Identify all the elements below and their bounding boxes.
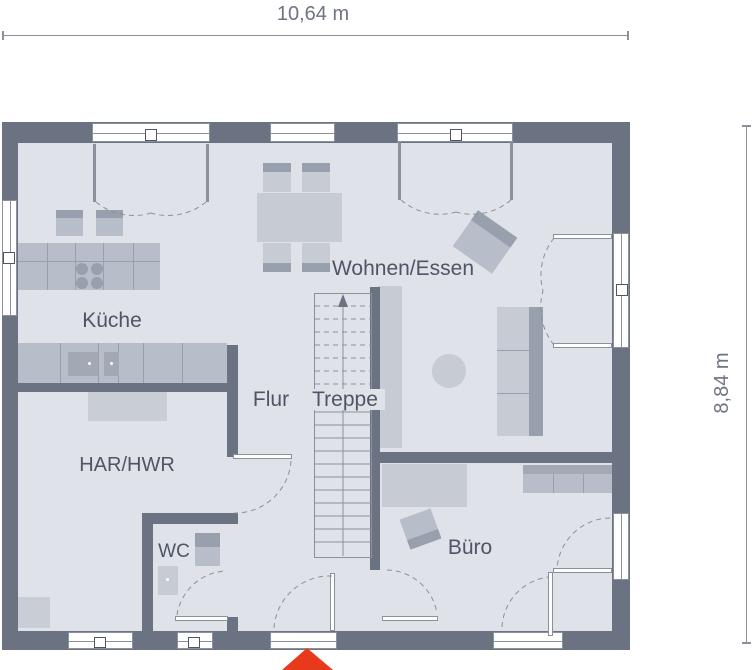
dimension-line-top [3, 35, 629, 36]
cooktop-burner [91, 263, 103, 275]
cooktop-burner [91, 277, 103, 289]
dining-table [257, 193, 342, 242]
room-label-wohnen-essen: Wohnen/Essen [323, 258, 483, 279]
wall-wc-stub [227, 617, 238, 631]
room-label-treppe: Treppe [305, 389, 385, 410]
door-leaf-buero-2 [548, 572, 553, 636]
dimension-tick [742, 125, 751, 127]
room-label-wc: WC [144, 542, 204, 561]
door-leaf-flur-buero [382, 616, 438, 621]
window-handle [145, 129, 157, 141]
sideboard [378, 286, 402, 448]
room-label-flur: Flur [231, 389, 311, 410]
dimension-line-right [746, 126, 747, 643]
har-cabinet [18, 597, 50, 628]
cooktop-burner [76, 277, 88, 289]
kitchen-stool [96, 210, 123, 236]
room-label-kueche: Küche [52, 310, 172, 331]
door-leaf-entrance [330, 573, 335, 631]
wall-wc-top [142, 513, 238, 524]
floor-plan-page: Küche Wohnen/Essen Flur Treppe HAR/HWR W… [0, 0, 752, 670]
shelf [523, 465, 613, 493]
window-handle [94, 637, 106, 648]
door-leaf [553, 343, 612, 348]
kitchen-counter-lower [17, 343, 227, 383]
entrance-door-opening [270, 632, 337, 649]
wall-living-buero [372, 452, 612, 463]
kitchen-appliance [104, 352, 119, 376]
door-leaf-wc [175, 616, 228, 621]
dimension-tick [742, 642, 751, 644]
coffee-table [432, 354, 466, 388]
door-leaf [510, 142, 513, 200]
sofa [497, 307, 543, 436]
door-leaf [93, 144, 96, 202]
wall-staircase [370, 287, 380, 570]
kitchen-oven [68, 352, 98, 376]
dimension-tick [627, 31, 629, 40]
har-appliance [88, 390, 167, 421]
desk [382, 464, 467, 507]
kitchen-stool [56, 210, 83, 236]
room-label-buero: Büro [420, 537, 520, 558]
wc-sink [158, 566, 178, 595]
wall-kitchen-har [2, 383, 232, 392]
window-handle [3, 252, 15, 264]
dimension-label-top: 10,64 m [233, 4, 393, 24]
window-handle [450, 129, 462, 141]
dining-chair [263, 243, 291, 272]
door-buero-right [613, 513, 629, 580]
door-leaf [398, 142, 401, 200]
wall-wc-left [142, 524, 153, 631]
dining-chair [302, 163, 330, 192]
dimension-label-right: 8,84 m [712, 323, 732, 443]
kitchen-counter-upper [18, 243, 160, 290]
window-handle [188, 637, 200, 648]
window-handle [616, 284, 628, 296]
door-leaf [206, 144, 209, 202]
entrance-arrow-icon [282, 648, 333, 670]
door-leaf [553, 234, 612, 239]
cooktop-burner [76, 263, 88, 275]
door-leaf-har [233, 454, 292, 459]
door-leaf-buero [553, 568, 612, 573]
dining-chair [263, 163, 291, 192]
dimension-tick [2, 31, 4, 40]
window-top-center [270, 123, 335, 142]
room-label-har-hwr: HAR/HWR [47, 455, 207, 475]
